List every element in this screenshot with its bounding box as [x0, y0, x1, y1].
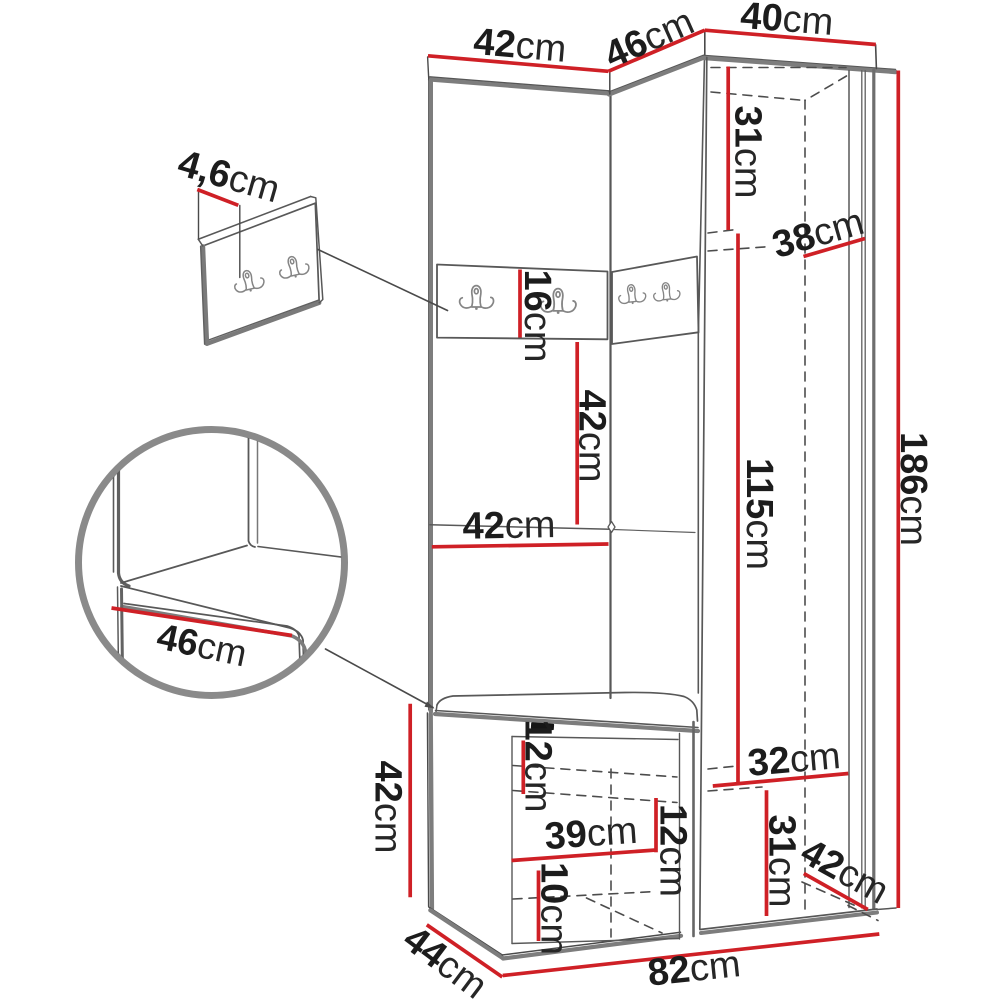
svg-text:42cm: 42cm: [571, 390, 613, 483]
svg-text:31cm: 31cm: [761, 815, 803, 908]
svg-text:39cm: 39cm: [543, 810, 639, 858]
svg-text:32cm: 32cm: [746, 735, 842, 785]
svg-text:40cm: 40cm: [739, 0, 835, 44]
svg-text:31cm: 31cm: [727, 106, 769, 199]
svg-text:10cm: 10cm: [533, 862, 575, 955]
svg-text:16cm: 16cm: [516, 270, 558, 363]
svg-text:42cm: 42cm: [367, 761, 409, 854]
svg-text:186cm: 186cm: [892, 432, 934, 546]
svg-text:42cm: 42cm: [462, 504, 556, 548]
svg-text:42cm: 42cm: [472, 21, 568, 71]
svg-text:115cm: 115cm: [738, 458, 780, 570]
svg-text:12cm: 12cm: [652, 804, 694, 897]
svg-text:12cm: 12cm: [517, 720, 559, 813]
